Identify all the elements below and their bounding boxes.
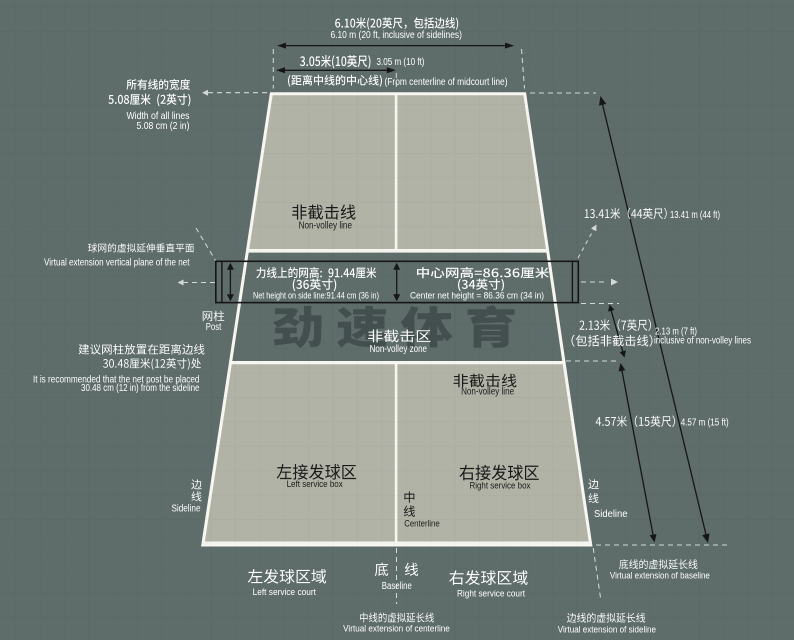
svg-text:Right service box: Right service box [470,481,531,492]
svg-text:inclusive of non-volley lines: inclusive of non-volley lines [654,336,751,347]
svg-text:3.05 m (10 ft): 3.05 m (10 ft) [377,57,425,68]
svg-text:Sideline: Sideline [172,503,201,514]
svg-text:5.08 cm (2 in): 5.08 cm (2 in) [137,121,190,132]
svg-text:6.10 m (20 ft, inclusive of si: 6.10 m (20 ft, inclusive of sidelines) [330,30,462,41]
svg-text:Virtual extension of centerlin: Virtual extension of centerline [343,623,450,634]
svg-text:Non-volley zone: Non-volley zone [370,344,428,355]
svg-text:Centerline: Centerline [404,517,440,528]
svg-text:30.48 cm (12 in) from the side: 30.48 cm (12 in) from the sideline [81,383,200,394]
svg-text:Sideline: Sideline [594,509,628,520]
svg-text:Baseline: Baseline [382,581,412,592]
svg-text:Left service court: Left service court [253,587,317,598]
svg-text:(From centerline of midcourt l: (From centerline of midcourt line) [385,77,508,88]
svg-text:Virtual extension vertical pla: Virtual extension vertical plane of the … [44,257,190,268]
svg-text:Left service box: Left service box [287,479,343,490]
svg-text:4.57 m (15 ft): 4.57 m (15 ft) [681,417,729,428]
svg-text:Center net height = 86.36 cm (: Center net height = 86.36 cm (34 in) [410,290,544,301]
svg-text:Virtual extension of baseline: Virtual extension of baseline [610,570,710,581]
svg-text:Post: Post [206,322,222,333]
svg-text:Right service court: Right service court [457,589,525,600]
svg-text:13.41 m (44 ft): 13.41 m (44 ft) [670,210,720,221]
svg-text:Virtual extension of sideline: Virtual extension of sideline [558,624,656,635]
svg-text:Non-volley line: Non-volley line [299,220,353,231]
svg-text:Net height on side line:91.44: Net height on side line:91.44 cm (36 in) [253,290,379,301]
svg-text:Non-volley line: Non-volley line [461,387,514,398]
